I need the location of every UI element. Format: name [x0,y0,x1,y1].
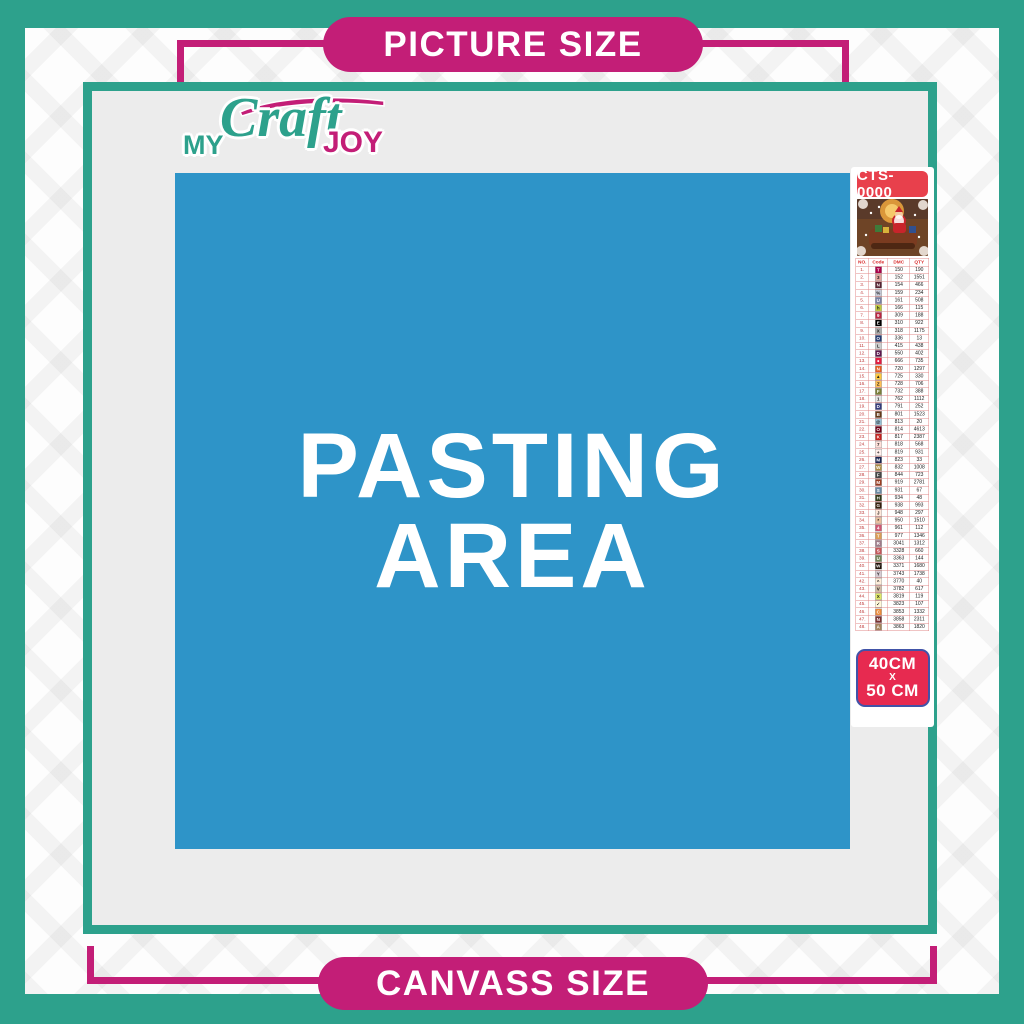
table-row: 15.▲725330 [855,373,928,381]
table-row: 44.X3819119 [855,593,928,601]
christmas-santa-thumbnail-icon [857,199,928,256]
table-row: 39.U3363144 [855,555,928,563]
color-swatch: + [874,449,881,456]
table-row: 18.17621112 [855,395,928,403]
table-row: 25.+819931 [855,449,928,457]
color-swatch: 9 [874,312,881,319]
table-row: 20.B8011523 [855,411,928,419]
table-row: 4.%159234 [855,289,928,297]
table-row: 40.W33711680 [855,562,928,570]
table-row: 1.T150190 [855,266,928,274]
table-row: 8.E310922 [855,319,928,327]
color-swatch: @ [874,418,881,425]
table-row: 16.Z728706 [855,380,928,388]
color-swatch: G [874,502,881,509]
table-row: 45.✓3823107 [855,600,928,608]
product-code-badge: CTS-0000 [857,171,928,197]
color-swatch: D [874,403,881,410]
table-row: 2.31521551 [855,274,928,282]
table-row: 21.@81320 [855,418,928,426]
color-swatch: Z [874,380,881,387]
color-swatch: U [874,555,881,562]
table-row: 23.K8172387 [855,433,928,441]
table-row: 36.T9771346 [855,532,928,540]
color-swatch: H [874,494,881,501]
logo-word-my: MY [183,130,224,161]
canvass-size-label: CANVASS SIZE [376,964,650,1004]
table-row: 34.*9501510 [855,517,928,525]
color-swatch: ▲ [874,373,881,380]
color-swatch: B [874,411,881,418]
table-row: 3.N154466 [855,281,928,289]
column-header: QTY [909,258,928,266]
product-thumbnail [857,199,928,256]
color-swatch: Y [874,570,881,577]
product-graphic: PICTURE SIZE CANVASS SIZE MY Craft JOY P… [0,0,1024,1024]
table-row: 5.U161508 [855,297,928,305]
table-row: 47.N38582311 [855,616,928,624]
column-header: Code [868,258,887,266]
table-row: 38.S3328660 [855,547,928,555]
color-swatch: 7 [874,441,881,448]
color-swatch: F [874,388,881,395]
color-swatch: V [874,585,881,592]
color-swatch: O [874,335,881,342]
color-swatch: ● [874,358,881,365]
pasting-area-line1: PASTING [297,421,727,511]
table-row: 11.L415438 [855,342,928,350]
color-swatch: D [874,350,881,357]
pasting-area: PASTING AREA [175,173,850,849]
color-swatch: X [874,327,881,334]
color-swatch: N [874,282,881,289]
table-row: 24.7818568 [855,441,928,449]
color-swatch: ^ [874,578,881,585]
size-badge: 40CM X 50 CM [856,649,930,707]
table-row: 19.D791252 [855,403,928,411]
color-swatch: C [874,608,881,615]
color-swatch: W [874,563,881,570]
color-swatch: F [874,472,881,479]
table-row: 28.F844723 [855,471,928,479]
color-swatch: % [874,289,881,296]
picture-size-banner: PICTURE SIZE [323,17,703,72]
table-row: 7.9309188 [855,312,928,320]
table-row: 12.D550402 [855,350,928,358]
table-row: 22.O8144613 [855,426,928,434]
table-row: 29.M9192781 [855,479,928,487]
table-row: 35.4961112 [855,524,928,532]
color-swatch: 3 [874,274,881,281]
table-row: 33.J948297 [855,509,928,517]
color-swatch: S [874,487,881,494]
color-swatch: W [874,464,881,471]
color-swatch: E [874,320,881,327]
color-swatch: R [874,540,881,547]
column-header: DMC [887,258,909,266]
color-chart-sidebar: CTS-0000 [851,167,934,727]
color-swatch: 1 [874,396,881,403]
table-row: 31.H93448 [855,494,928,502]
color-swatch: O [874,426,881,433]
color-swatch: J [874,510,881,517]
color-swatch: X [874,593,881,600]
table-row: 37.R30411312 [855,540,928,548]
table-row: 43.V3782617 [855,585,928,593]
color-swatch: ✓ [874,601,881,608]
table-row: 32.G938993 [855,502,928,510]
table-row: 42.^377040 [855,578,928,586]
table-row: 13.●666735 [855,357,928,365]
color-swatch: 4 [874,525,881,532]
color-swatch: T [874,532,881,539]
color-swatch: K [874,434,881,441]
table-row: 17.F732388 [855,388,928,396]
canvass-size-banner: CANVASS SIZE [318,957,708,1010]
color-swatch: T [874,267,881,274]
color-swatch: N [874,365,881,372]
table-row: 41.Y37431738 [855,570,928,578]
table-row: 27.W8321008 [855,464,928,472]
color-swatch: h [874,305,881,312]
table-row: 6.h166115 [855,304,928,312]
color-swatch: M [874,479,881,486]
picture-size-label: PICTURE SIZE [383,25,642,65]
table-row: 46.C38531332 [855,608,928,616]
brand-logo: MY Craft JOY [183,94,398,170]
logo-word-joy: JOY [323,126,383,160]
column-header: NO. [855,258,868,266]
table-row: 14.N7201297 [855,365,928,373]
size-width-label: 40CM [858,655,928,673]
color-swatch: A [874,623,881,630]
table-row: 26.M82333 [855,456,928,464]
table-row: 48.A38631820 [855,623,928,631]
table-row: 9.X3181175 [855,327,928,335]
color-swatch: N [874,616,881,623]
color-swatch: * [874,517,881,524]
color-swatch: S [874,548,881,555]
table-row: 10.O33613 [855,335,928,343]
table-row: 30.S93167 [855,486,928,494]
color-swatch: U [874,297,881,304]
size-height-label: 50 CM [858,682,928,700]
color-swatch: M [874,456,881,463]
dmc-color-table: NO.CodeDMCQTY 1.T1501902.315215513.N1544… [855,258,929,631]
pasting-area-line2: AREA [374,511,651,601]
dmc-color-table-wrap: NO.CodeDMCQTY 1.T1501902.315215513.N1544… [855,258,931,646]
color-swatch: L [874,342,881,349]
